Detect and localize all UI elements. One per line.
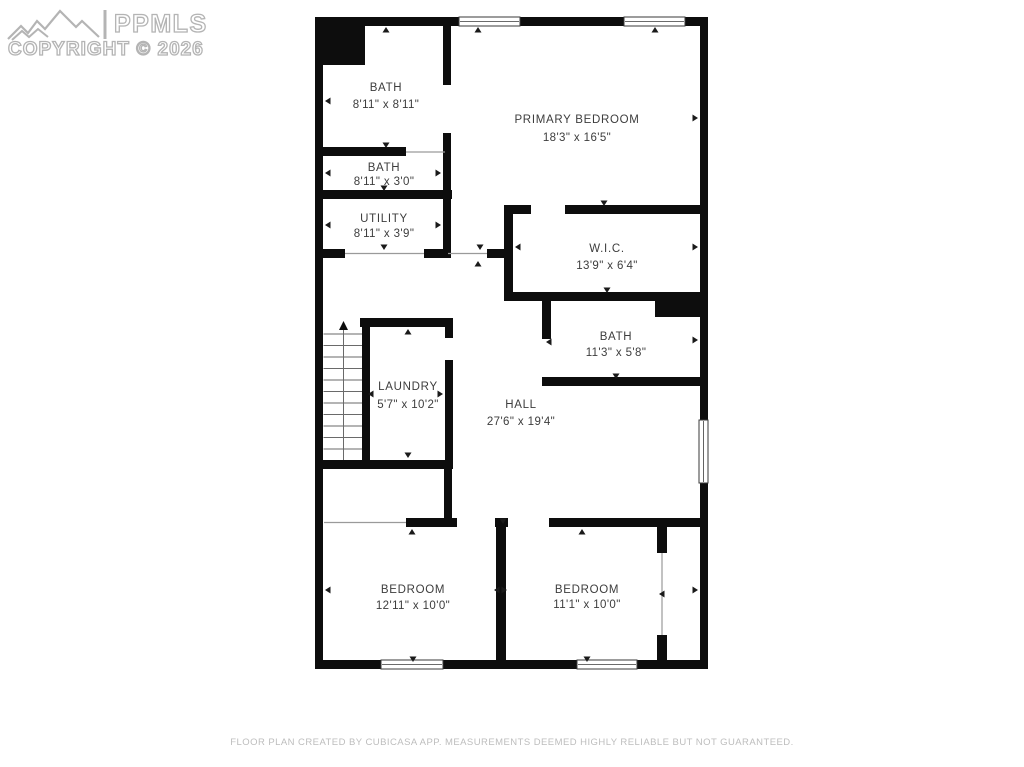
room-dims-bedroom-1: 12'11" x 10'0" [376,600,450,612]
outer-wall-right [700,17,708,669]
laundry-right-wall [445,360,453,469]
measurement-tick [477,245,484,251]
room-label-wic: W.I.C. [589,243,625,255]
bath-corner-notch [315,17,365,65]
closet-divider-upper [657,527,667,553]
laundry-top-wall [360,318,453,327]
room-dims-bath-3: 11'3" x 5'8" [586,347,647,359]
wic-left-wall [504,213,513,301]
hall-bedroom-wall-mid [406,518,457,527]
room-label-laundry: LAUNDRY [378,381,438,393]
bath3-bottom-wall [542,377,708,386]
bath3-corner-notch [655,301,708,317]
measurement-tick [475,27,482,33]
measurement-tick [405,329,412,335]
measurement-tick [546,339,552,346]
outer-wall-bottom [315,660,708,669]
utility-bottom-wall-right [424,249,451,258]
hall-bedroom-wall-right [549,518,708,527]
measurement-tick [438,391,444,398]
measurement-tick [436,222,442,229]
measurement-tick [693,587,699,594]
bath3-left-wall-upper [542,301,551,339]
wic-top-wall-right [565,205,708,214]
laundry-right-wall-stub [445,318,453,338]
bath-primary-divider-upper [443,17,451,85]
measurement-tick [383,27,390,33]
measurement-tick [436,170,442,177]
room-dims-bath-2: 8'11" x 3'0" [354,176,415,188]
room-label-bath-1: BATH [370,82,403,94]
floor-plan: BATH 8'11" x 8'11" BATH 8'11" x 3'0" UTI… [0,0,1024,767]
measurement-tick [693,244,699,251]
room-label-primary-bedroom: PRIMARY BEDROOM [514,114,639,126]
measurement-tick [409,529,416,535]
measurement-tick [579,529,586,535]
outer-wall-left [315,17,323,669]
stair-direction-arrow [339,321,348,330]
bath2-utility-wall [315,190,452,199]
laundry-bottom-wall [315,460,453,469]
room-label-bedroom-2: BEDROOM [555,584,619,596]
measurement-tick [325,170,331,177]
measurement-tick [325,587,331,594]
wic-top-wall-left [504,205,531,214]
bedroom-divider-wall [496,527,506,660]
measurement-tick [475,261,482,267]
measurement-ticks [325,27,698,662]
room-dims-utility: 8'11" x 3'9" [354,228,415,240]
measurement-tick [693,337,699,344]
wic-bottom-wall [504,292,708,301]
measurement-tick [405,453,412,459]
room-dims-primary-bedroom: 18'3" x 16'5" [543,132,611,144]
measurement-tick [693,115,699,122]
room-label-hall: HALL [505,399,537,411]
measurement-tick [652,27,659,33]
floorplan-page: PPMLS COPYRIGHT © 2026 BATH 8'11" x 8'11… [0,0,1024,767]
room-dims-bedroom-2: 11'1" x 10'0" [553,599,620,611]
room-dims-bath-1: 8'11" x 8'11" [353,99,420,111]
room-label-bath-2: BATH [368,162,401,174]
walls [315,17,708,669]
measurement-tick [325,98,331,105]
room-dims-wic: 13'9" x 6'4" [576,260,637,272]
disclaimer-text: FLOOR PLAN CREATED BY CUBICASA APP. MEAS… [0,737,1024,748]
utility-bottom-wall-left [315,249,345,258]
closet-divider-lower [657,635,667,660]
room-dims-laundry: 5'7" x 10'2" [377,399,438,411]
stairs [324,321,363,460]
measurement-tick [515,244,521,251]
measurement-tick [381,245,388,251]
room-label-utility: UTILITY [360,213,408,225]
room-label-bedroom-1: BEDROOM [381,584,445,596]
room-label-bath-3: BATH [600,331,633,343]
bath1-bath2-wall [315,147,406,156]
measurement-tick [325,222,331,229]
room-dims-hall: 27'6" x 19'4" [487,416,555,428]
